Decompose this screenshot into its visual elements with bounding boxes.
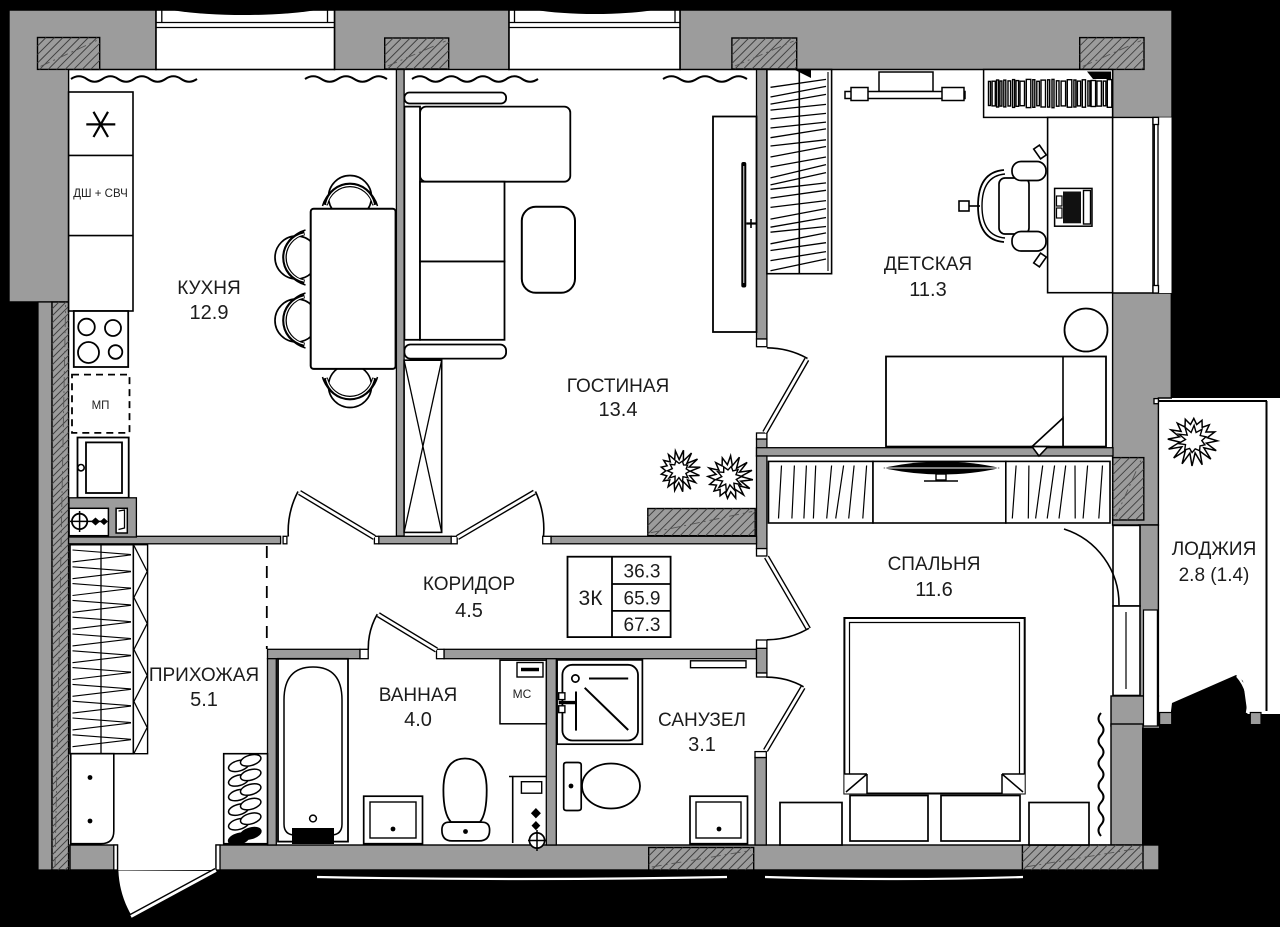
svg-text:2.8 (1.4): 2.8 (1.4)	[1179, 565, 1250, 586]
svg-text:11.3: 11.3	[909, 279, 946, 301]
svg-text:13.4: 13.4	[599, 399, 638, 421]
svg-text:ЛОДЖИЯ: ЛОДЖИЯ	[1172, 539, 1257, 560]
svg-text:67.3: 67.3	[624, 615, 661, 636]
svg-text:МП: МП	[92, 400, 110, 412]
svg-text:12.9: 12.9	[190, 302, 229, 324]
svg-text:4.0: 4.0	[404, 709, 432, 731]
svg-text:11.6: 11.6	[915, 579, 952, 601]
svg-text:КУХНЯ: КУХНЯ	[177, 278, 240, 299]
svg-text:КОРИДОР: КОРИДОР	[423, 574, 515, 595]
svg-text:ДЕТСКАЯ: ДЕТСКАЯ	[884, 254, 972, 275]
svg-text:СПАЛЬНЯ: СПАЛЬНЯ	[888, 554, 981, 575]
svg-text:ВАННАЯ: ВАННАЯ	[379, 685, 458, 706]
svg-text:ДШ + СВЧ: ДШ + СВЧ	[73, 188, 128, 200]
svg-text:ГОСТИНАЯ: ГОСТИНАЯ	[567, 376, 669, 397]
svg-text:3.1: 3.1	[688, 734, 716, 756]
svg-text:МС: МС	[513, 687, 532, 701]
svg-text:36.3: 36.3	[624, 562, 661, 583]
svg-text:5.1: 5.1	[190, 689, 218, 711]
svg-text:ПРИХОЖАЯ: ПРИХОЖАЯ	[149, 665, 259, 686]
svg-text:65.9: 65.9	[624, 588, 661, 609]
svg-text:САНУЗЕЛ: САНУЗЕЛ	[658, 710, 746, 731]
svg-text:3К: 3К	[579, 587, 604, 610]
svg-text:4.5: 4.5	[455, 600, 483, 622]
